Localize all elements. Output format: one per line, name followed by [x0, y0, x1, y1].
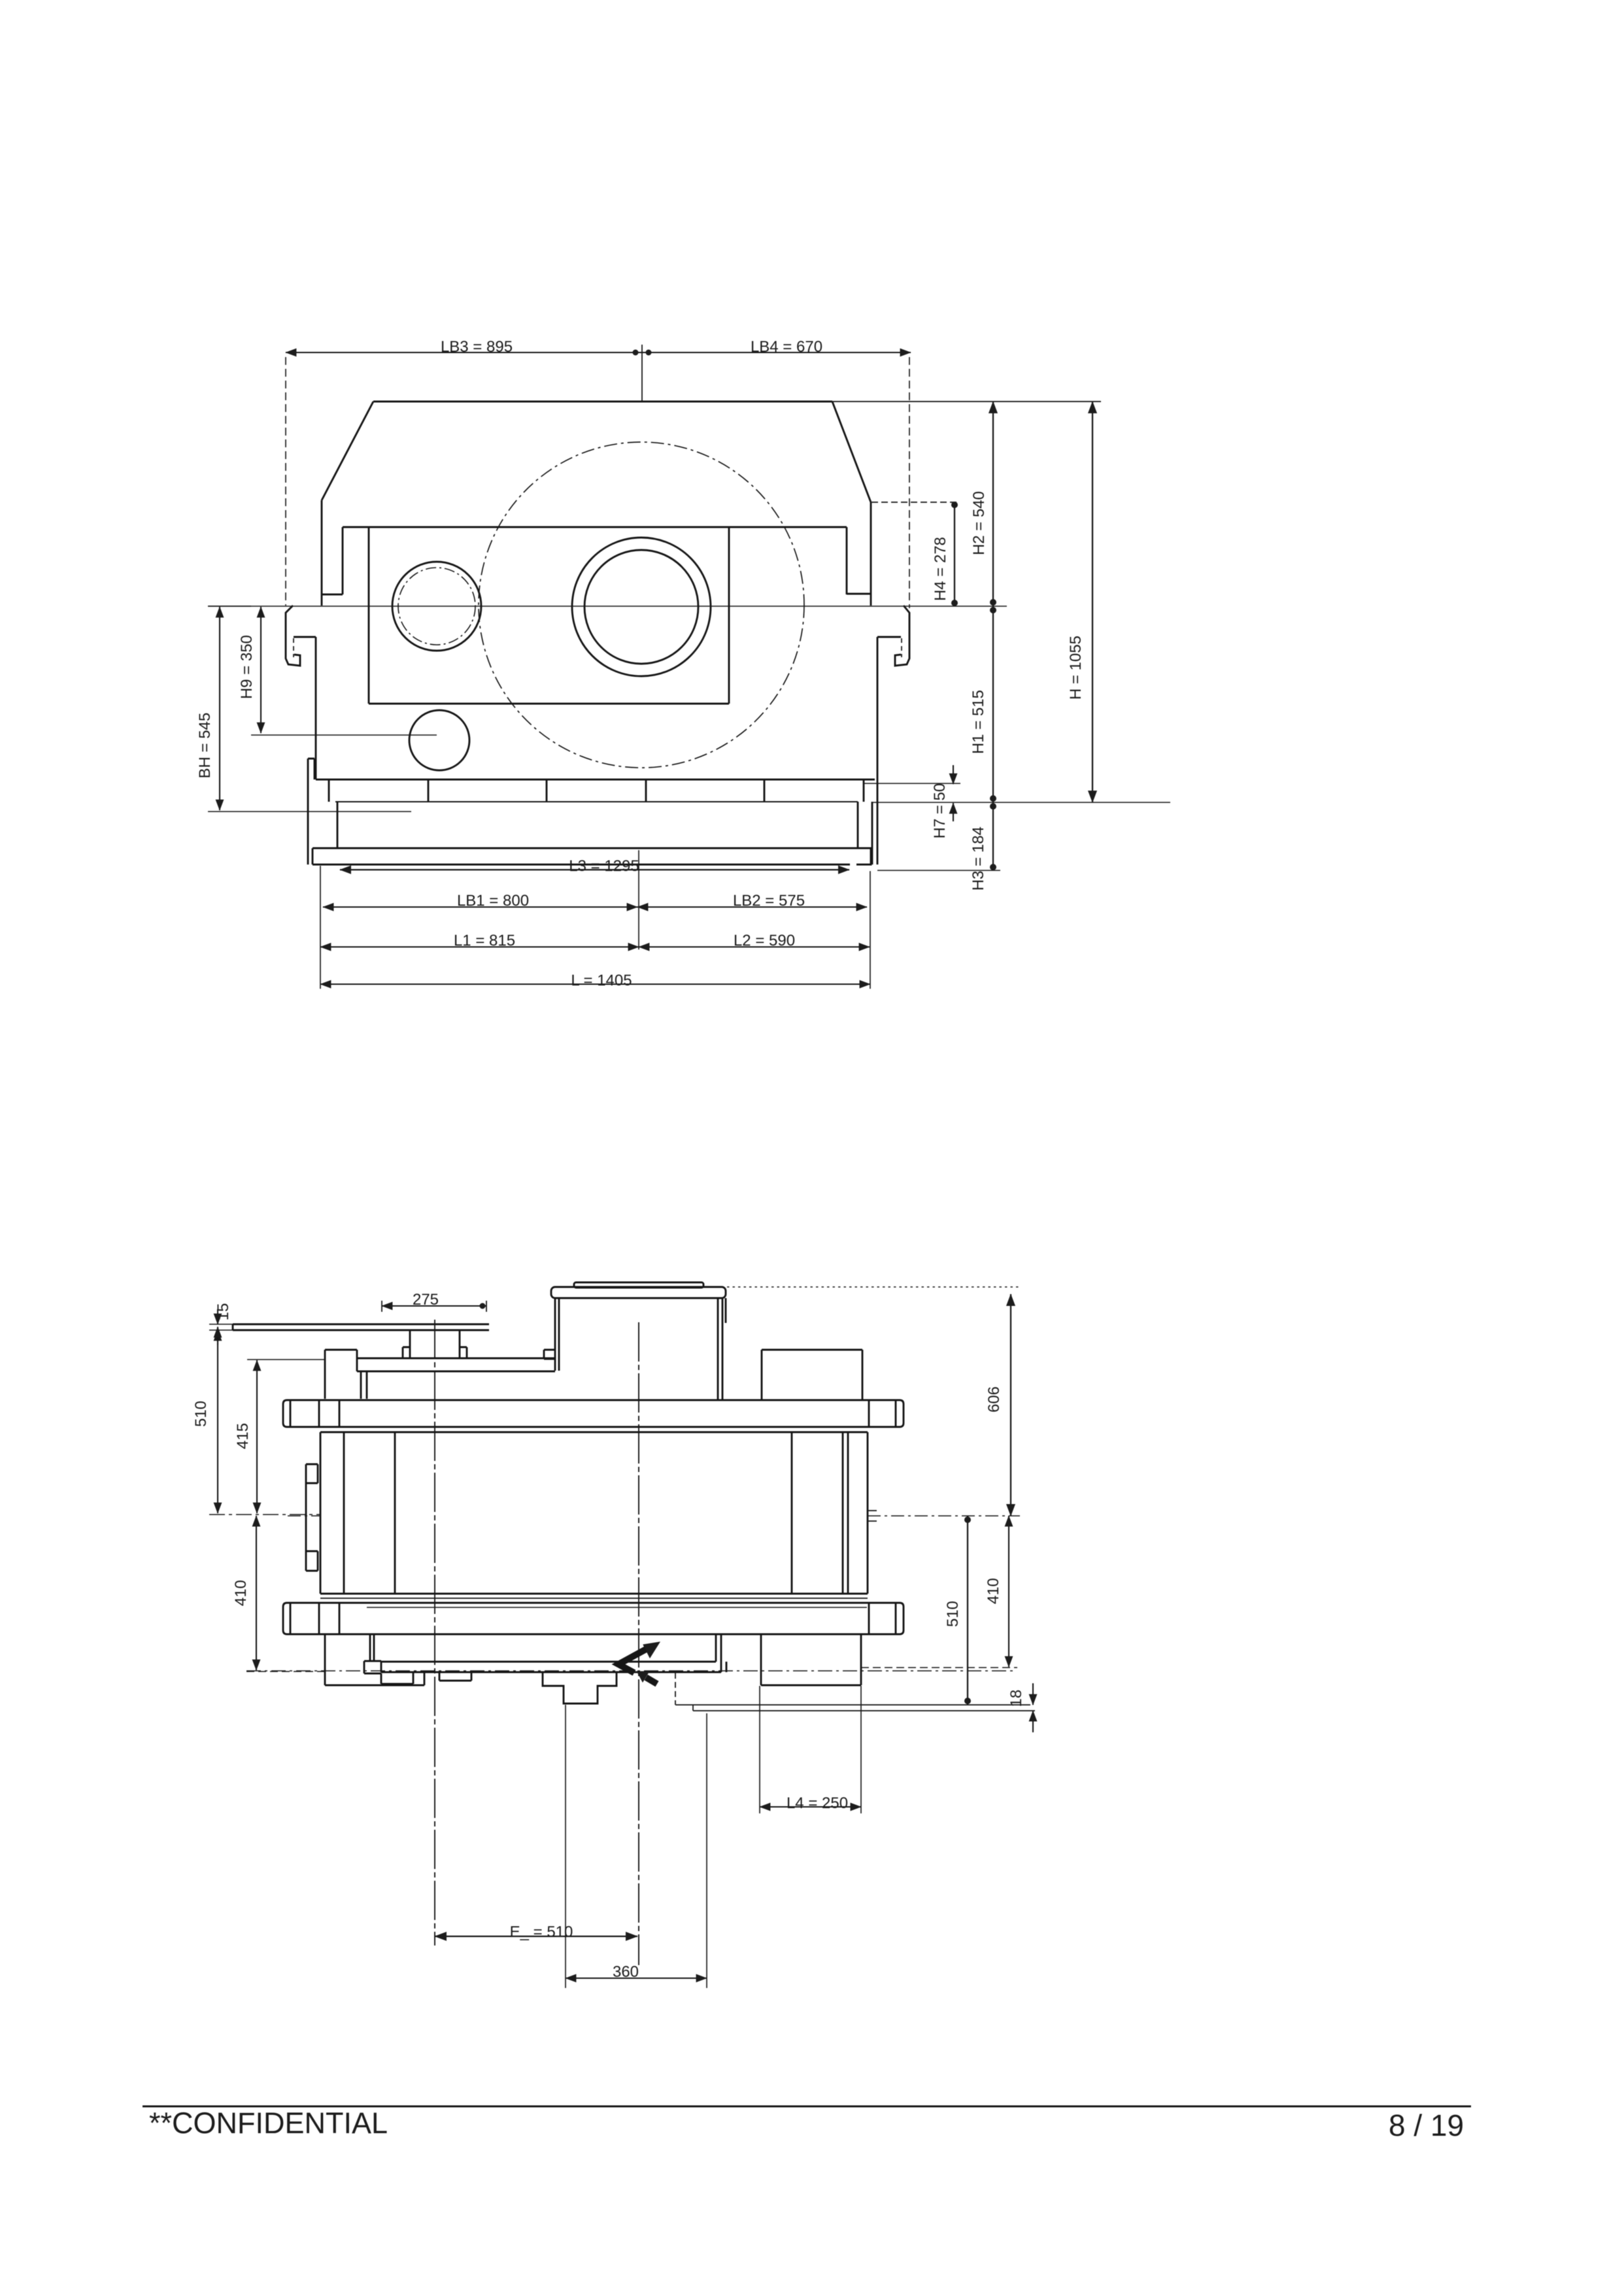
svg-text:L1 = 815: L1 = 815	[454, 932, 515, 950]
svg-text:510: 510	[192, 1401, 210, 1427]
svg-text:18: 18	[1007, 1690, 1025, 1707]
svg-text:606: 606	[985, 1386, 1003, 1413]
svg-text:LB4 = 670: LB4 = 670	[751, 338, 822, 356]
svg-text:410: 410	[985, 1578, 1002, 1604]
svg-text:L3 = 1295: L3 = 1295	[569, 857, 639, 875]
svg-text:15: 15	[214, 1303, 232, 1321]
svg-text:L = 1405: L = 1405	[571, 972, 632, 989]
svg-text:8 / 19: 8 / 19	[1389, 2108, 1464, 2142]
svg-text:H9 = 350: H9 = 350	[238, 635, 256, 699]
svg-text:**CONFIDENTIAL: **CONFIDENTIAL	[149, 2106, 388, 2140]
svg-text:410: 410	[232, 1580, 250, 1606]
svg-text:L4 = 250: L4 = 250	[787, 1794, 848, 1812]
svg-text:BH = 545: BH = 545	[196, 713, 214, 779]
svg-text:510: 510	[944, 1601, 962, 1627]
svg-text:LB3 = 895: LB3 = 895	[441, 338, 513, 356]
svg-text:E_ = 510: E_ = 510	[510, 1923, 573, 1941]
svg-text:LB2 = 575: LB2 = 575	[733, 892, 805, 910]
svg-text:360: 360	[613, 1963, 639, 1981]
svg-text:H3 = 184: H3 = 184	[970, 827, 987, 891]
svg-text:H7 = 50: H7 = 50	[931, 783, 949, 839]
svg-text:H4 = 278: H4 = 278	[932, 537, 949, 601]
svg-text:L2 = 590: L2 = 590	[734, 932, 795, 950]
svg-text:H1 = 515: H1 = 515	[970, 690, 987, 754]
svg-text:415: 415	[234, 1423, 252, 1449]
svg-text:H = 1055: H = 1055	[1067, 636, 1085, 700]
svg-text:LB1 = 800: LB1 = 800	[457, 892, 529, 910]
svg-text:275: 275	[413, 1291, 439, 1309]
svg-text:H2 = 540: H2 = 540	[970, 491, 988, 555]
